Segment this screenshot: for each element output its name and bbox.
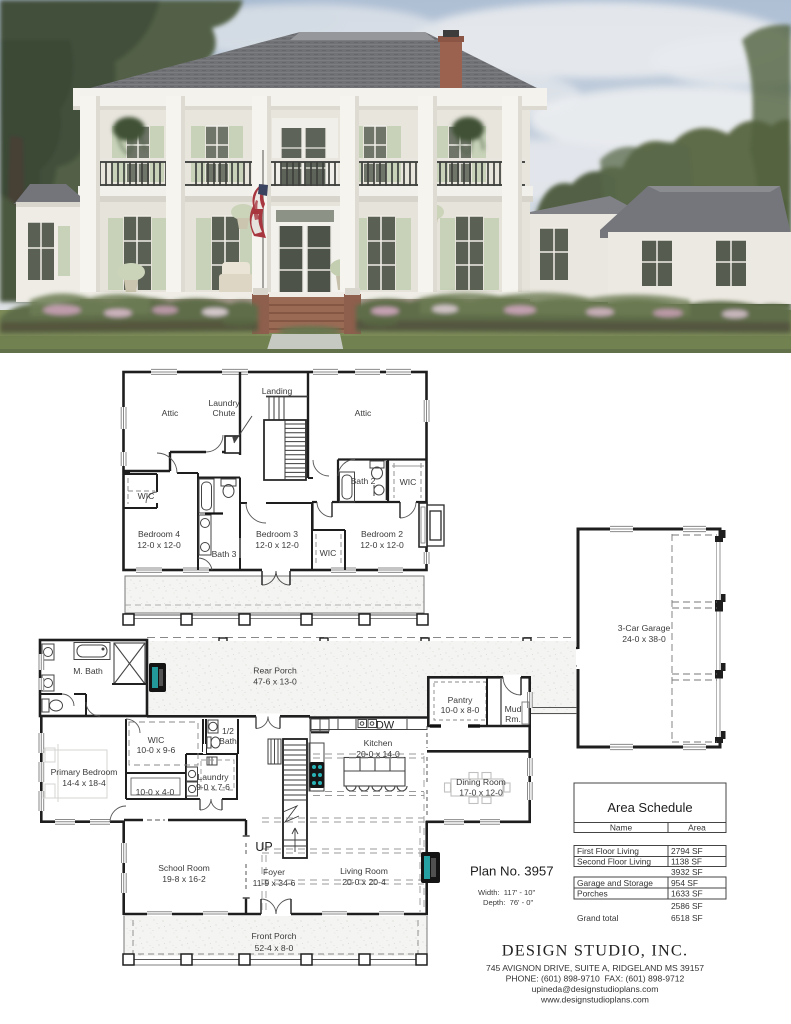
svg-text:10-0 x 9-6: 10-0 x 9-6 <box>137 745 176 755</box>
svg-text:17-0 x 12-0: 17-0 x 12-0 <box>459 788 503 798</box>
svg-text:6518 SF: 6518 SF <box>671 913 703 923</box>
svg-text:1138 SF: 1138 SF <box>671 857 702 867</box>
svg-text:Bedroom 4: Bedroom 4 <box>138 529 180 539</box>
svg-text:Foyer: Foyer <box>263 867 285 877</box>
svg-text:Mud: Mud <box>505 704 522 714</box>
svg-text:3932 SF: 3932 SF <box>671 867 703 877</box>
svg-text:Attic: Attic <box>162 408 179 418</box>
svg-text:14-4 x 18-4: 14-4 x 18-4 <box>62 778 106 788</box>
svg-text:Kitchen: Kitchen <box>364 738 393 748</box>
svg-text:Bath 2: Bath 2 <box>351 476 376 486</box>
svg-text:Bedroom 2: Bedroom 2 <box>361 529 403 539</box>
svg-text:PHONE: (601) 898-9710 FAX: (6: PHONE: (601) 898-9710 FAX: (601) 898-971… <box>506 974 685 984</box>
svg-text:Living Room: Living Room <box>340 866 388 876</box>
svg-text:UP: UP <box>255 840 272 854</box>
svg-text:10-0 x 4-0: 10-0 x 4-0 <box>136 787 175 797</box>
svg-text:12-0 x 12-0: 12-0 x 12-0 <box>360 540 404 550</box>
svg-text:First Floor Living: First Floor Living <box>577 846 639 856</box>
svg-text:9-0 x 7-6: 9-0 x 7-6 <box>196 782 230 792</box>
svg-text:Garage and Storage: Garage and Storage <box>577 878 653 888</box>
svg-text:3-Car Garage: 3-Car Garage <box>618 623 671 633</box>
svg-text:954 SF: 954 SF <box>671 878 698 888</box>
svg-text:WIC: WIC <box>400 477 417 487</box>
svg-text:WIC: WIC <box>138 491 155 501</box>
svg-text:Width: 117' - 10": Width: 117' - 10" <box>478 888 535 897</box>
svg-text:DW: DW <box>376 720 395 732</box>
svg-text:19-8 x 16-2: 19-8 x 16-2 <box>162 874 206 884</box>
svg-text:1/2: 1/2 <box>222 726 234 736</box>
svg-text:Laundry: Laundry <box>197 772 229 782</box>
svg-text:2794 SF: 2794 SF <box>671 846 703 856</box>
svg-text:Depth: 76' - 0": Depth: 76' - 0" <box>483 898 533 907</box>
svg-text:47-6 x 13-0: 47-6 x 13-0 <box>253 677 297 687</box>
svg-text:2586 SF: 2586 SF <box>671 901 703 911</box>
svg-text:20-0 x 14-0: 20-0 x 14-0 <box>356 749 400 759</box>
svg-text:Dining Room: Dining Room <box>456 777 506 787</box>
svg-text:Grand total: Grand total <box>577 913 619 923</box>
svg-text:Front Porch: Front Porch <box>252 931 297 941</box>
svg-text:10-0 x 8-0: 10-0 x 8-0 <box>441 705 480 715</box>
svg-text:11-9 x 34-6: 11-9 x 34-6 <box>253 878 296 888</box>
svg-text:Primary Bedroom: Primary Bedroom <box>51 767 118 777</box>
svg-text:Laundry: Laundry <box>208 398 240 408</box>
svg-text:745 AVIGNON DRIVE, SUITE A, RI: 745 AVIGNON DRIVE, SUITE A, RIDGELAND MS… <box>486 963 704 973</box>
svg-text:Landing: Landing <box>262 386 293 396</box>
svg-text:School Room: School Room <box>158 863 210 873</box>
svg-text:www.designstudioplans.com: www.designstudioplans.com <box>540 995 649 1005</box>
svg-text:Plan No. 3957: Plan No. 3957 <box>470 864 554 879</box>
svg-text:Bath: Bath <box>219 736 237 746</box>
svg-text:12-0 x 12-0: 12-0 x 12-0 <box>255 540 299 550</box>
svg-text:52-4 x 8-0: 52-4 x 8-0 <box>255 943 294 953</box>
svg-text:M. Bath: M. Bath <box>73 666 103 676</box>
svg-text:24-0 x 38-0: 24-0 x 38-0 <box>622 634 666 644</box>
svg-text:Second Floor Living: Second Floor Living <box>577 857 651 867</box>
svg-text:DESIGN STUDIO, INC.: DESIGN STUDIO, INC. <box>502 941 689 960</box>
svg-text:Attic: Attic <box>355 408 372 418</box>
svg-text:WIC: WIC <box>320 548 337 558</box>
svg-text:12-0 x 12-0: 12-0 x 12-0 <box>137 540 181 550</box>
svg-text:Rm.: Rm. <box>505 714 521 724</box>
svg-text:upineda@designstudioplans.com: upineda@designstudioplans.com <box>532 984 659 994</box>
svg-text:Name: Name <box>610 823 633 833</box>
svg-text:Chute: Chute <box>213 408 236 418</box>
svg-text:1633 SF: 1633 SF <box>671 889 703 899</box>
svg-text:Bedroom 3: Bedroom 3 <box>256 529 298 539</box>
svg-text:20-0 x 20-4: 20-0 x 20-4 <box>342 877 386 887</box>
svg-text:WIC: WIC <box>148 735 165 745</box>
svg-text:Pantry: Pantry <box>448 695 474 705</box>
svg-text:Area Schedule: Area Schedule <box>607 800 692 815</box>
svg-text:Porches: Porches <box>577 889 608 899</box>
svg-text:Bath 3: Bath 3 <box>212 549 237 559</box>
svg-text:Rear Porch: Rear Porch <box>253 666 297 676</box>
svg-text:Area: Area <box>688 823 706 833</box>
